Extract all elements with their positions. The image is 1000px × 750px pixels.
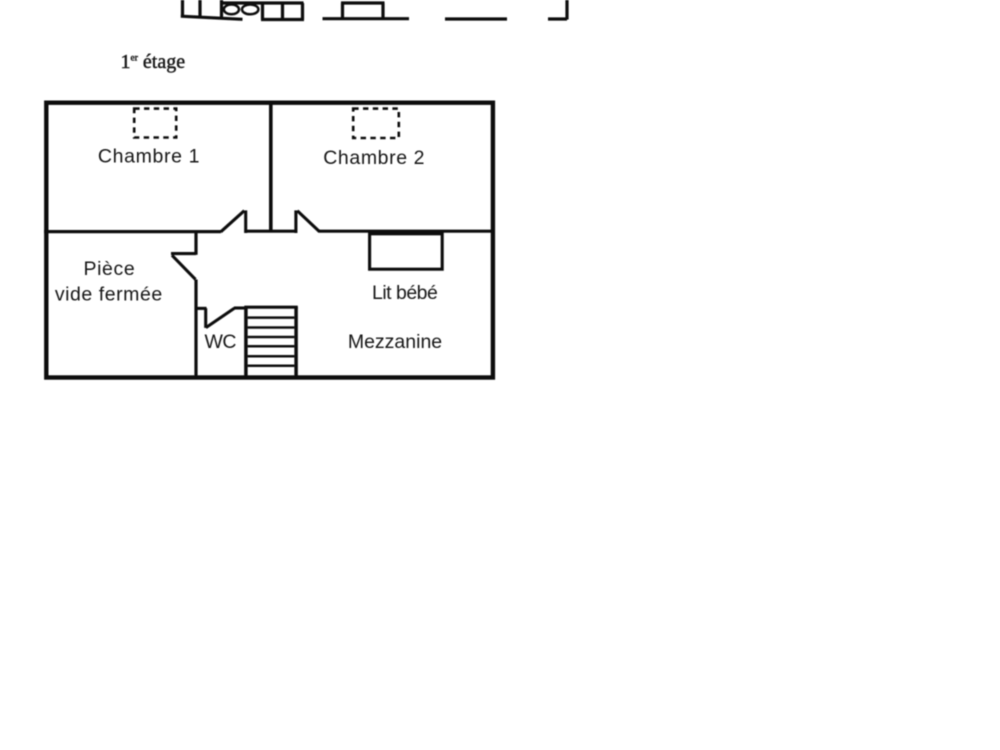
svg-text:Chambre 1: Chambre 1	[98, 146, 200, 168]
svg-text:Mezzanine: Mezzanine	[348, 331, 442, 353]
svg-text:WC: WC	[205, 331, 237, 353]
svg-text:Pièce: Pièce	[84, 258, 136, 280]
svg-text:Chambre 2: Chambre 2	[323, 147, 425, 169]
svg-text:Lit bébé: Lit bébé	[372, 282, 437, 304]
svg-text:vide fermée: vide fermée	[55, 284, 163, 306]
svg-text:1er étage: 1er étage	[121, 51, 186, 73]
